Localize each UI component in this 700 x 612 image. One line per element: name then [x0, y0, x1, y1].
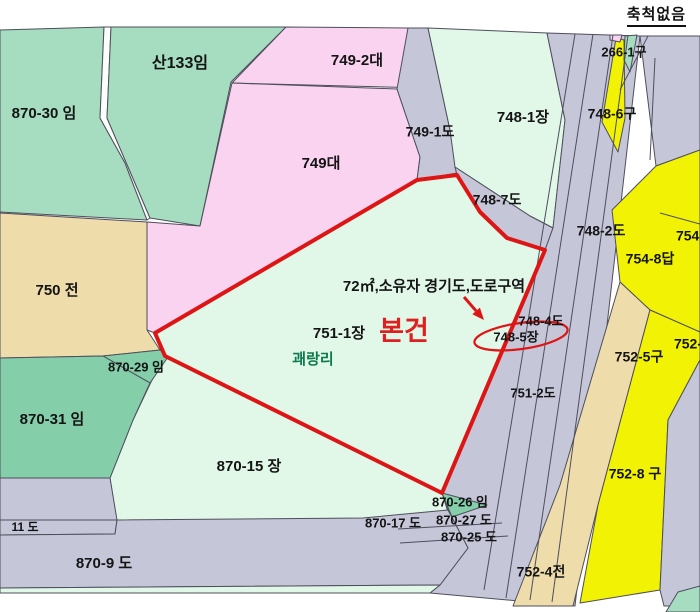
- map-label-22: 752-: [674, 336, 700, 352]
- map-label-1: 870-30 임: [12, 105, 77, 122]
- map-label-26: 870-26 임: [432, 494, 488, 509]
- map-label-18: 괘랑리: [292, 350, 333, 368]
- map-label-12: 750 전: [36, 282, 79, 299]
- map-label-28: 870-27 도: [436, 512, 492, 527]
- scale-note: 축척없음: [627, 3, 686, 27]
- map-label-25: 752-8 구: [609, 466, 662, 482]
- map-label-7: 749대: [302, 155, 341, 172]
- map-label-13: 72㎡,소유자 경기도,도로구역: [343, 277, 525, 295]
- map-label-9: 748-2도: [577, 223, 626, 239]
- map-label-24: 870-15 장: [217, 457, 282, 475]
- map-label-8: 748-7도: [473, 192, 522, 208]
- cadastral-map-page: 축척없음 산133임870-30 임749-2대749-1도748-1장748-…: [0, 0, 700, 612]
- map-label-21: 752-5구: [615, 349, 664, 365]
- map-label-31: 870-9 도: [76, 555, 133, 572]
- parcel-750-jeon: [0, 213, 160, 358]
- map-label-0: 산133임: [152, 54, 208, 72]
- map-label-14: 751-1장: [313, 324, 365, 342]
- map-label-15: 본건: [379, 316, 429, 346]
- map-label-16: 748-4도: [518, 313, 563, 328]
- map-label-30: 11 도: [11, 520, 38, 534]
- parcel-sw-road-gray: [0, 478, 117, 520]
- map-label-3: 749-1도: [406, 124, 455, 140]
- map-label-27: 870-17 도: [365, 515, 421, 530]
- map-label-5: 748-6구: [588, 106, 637, 122]
- map-label-20: 751-2도: [510, 385, 555, 400]
- map-label-2: 749-2대: [331, 52, 383, 69]
- map-label-6: 266-1구: [601, 44, 646, 59]
- map-label-29: 870-25 도: [441, 529, 497, 544]
- map-label-11: 754-8답: [626, 251, 675, 267]
- parcel-east-road-top: [640, 36, 700, 166]
- map-label-10: 754-: [676, 228, 700, 244]
- map-label-23: 870-31 임: [20, 411, 85, 428]
- map-label-32: 752-4전: [517, 564, 566, 580]
- map-label-4: 748-1장: [497, 108, 549, 126]
- map-label-17: 748-5장: [493, 329, 538, 344]
- map-label-19: 870-29 임: [108, 359, 164, 374]
- cadastral-map-image: 산133임870-30 임749-2대749-1도748-1장748-6구266…: [0, 0, 700, 612]
